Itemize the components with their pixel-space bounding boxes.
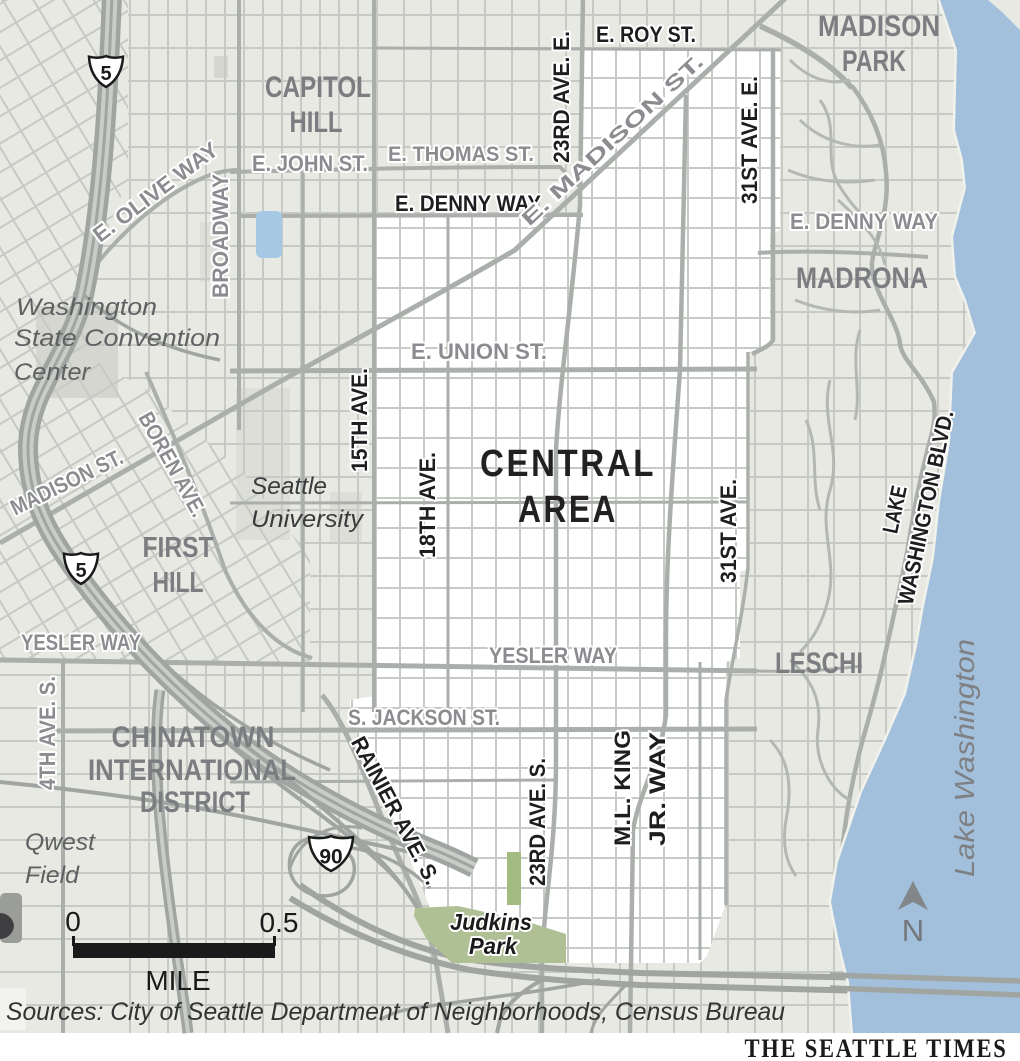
svg-text:31ST AVE.: 31ST AVE. — [716, 479, 741, 583]
svg-text:FIRST: FIRST — [143, 532, 214, 564]
svg-text:Qwest: Qwest — [25, 829, 96, 856]
svg-text:S. JACKSON ST.: S. JACKSON ST. — [348, 705, 500, 730]
svg-text:0.5: 0.5 — [260, 907, 299, 938]
svg-text:HILL: HILL — [153, 567, 204, 599]
svg-text:THE SEATTLE TIMES: THE SEATTLE TIMES — [745, 1034, 1008, 1061]
svg-text:E. UNION ST.: E. UNION ST. — [411, 339, 547, 364]
svg-text:Center: Center — [14, 359, 91, 386]
svg-text:23RD AVE. S.: 23RD AVE. S. — [525, 758, 550, 886]
svg-text:AREA: AREA — [518, 489, 618, 531]
svg-text:N: N — [902, 913, 924, 948]
svg-text:Sources: City of Seattle Depar: Sources: City of Seattle Department of N… — [6, 998, 785, 1026]
svg-text:CHINATOWN: CHINATOWN — [112, 721, 275, 754]
svg-text:E. DENNY WAY: E. DENNY WAY — [790, 209, 938, 234]
svg-text:23RD AVE. E.: 23RD AVE. E. — [549, 31, 574, 163]
svg-text:15TH AVE.: 15TH AVE. — [347, 368, 372, 472]
svg-text:E. JOHN ST.: E. JOHN ST. — [252, 151, 368, 176]
svg-text:E. ROY ST.: E. ROY ST. — [596, 22, 696, 47]
svg-text:5: 5 — [100, 63, 111, 85]
svg-text:State Convention: State Convention — [14, 325, 220, 352]
svg-text:YESLER WAY: YESLER WAY — [489, 643, 617, 668]
svg-text:Lake Washington: Lake Washington — [949, 639, 980, 877]
svg-text:Park: Park — [469, 933, 518, 959]
svg-text:31ST AVE. E.: 31ST AVE. E. — [737, 76, 762, 204]
svg-text:Washington: Washington — [16, 294, 157, 321]
svg-text:MADRONA: MADRONA — [796, 262, 928, 295]
svg-text:YESLER WAY: YESLER WAY — [21, 630, 141, 655]
svg-text:Seattle: Seattle — [251, 473, 327, 500]
svg-text:CENTRAL: CENTRAL — [480, 443, 656, 485]
svg-text:HILL: HILL — [290, 106, 343, 139]
svg-text:0: 0 — [65, 906, 81, 937]
svg-text:LESCHI: LESCHI — [775, 647, 863, 680]
svg-text:BROADWAY: BROADWAY — [208, 174, 233, 298]
svg-text:PARK: PARK — [842, 45, 906, 78]
svg-text:JR. WAY: JR. WAY — [645, 732, 670, 846]
svg-text:5: 5 — [75, 560, 86, 582]
svg-text:90: 90 — [319, 845, 342, 868]
svg-text:18TH AVE.: 18TH AVE. — [415, 452, 440, 558]
svg-text:4TH AVE. S.: 4TH AVE. S. — [35, 676, 60, 790]
svg-text:Field: Field — [25, 862, 80, 889]
svg-text:MADISON: MADISON — [818, 10, 940, 43]
svg-text:MILE: MILE — [145, 965, 210, 996]
svg-text:M.L. KING: M.L. KING — [610, 730, 635, 846]
svg-text:University: University — [251, 506, 365, 533]
svg-text:INTERNATIONAL: INTERNATIONAL — [88, 754, 296, 787]
svg-text:CAPITOL: CAPITOL — [265, 71, 371, 104]
svg-text:DISTRICT: DISTRICT — [140, 786, 250, 819]
svg-text:Judkins: Judkins — [450, 909, 532, 935]
svg-text:E. THOMAS ST.: E. THOMAS ST. — [388, 143, 534, 166]
